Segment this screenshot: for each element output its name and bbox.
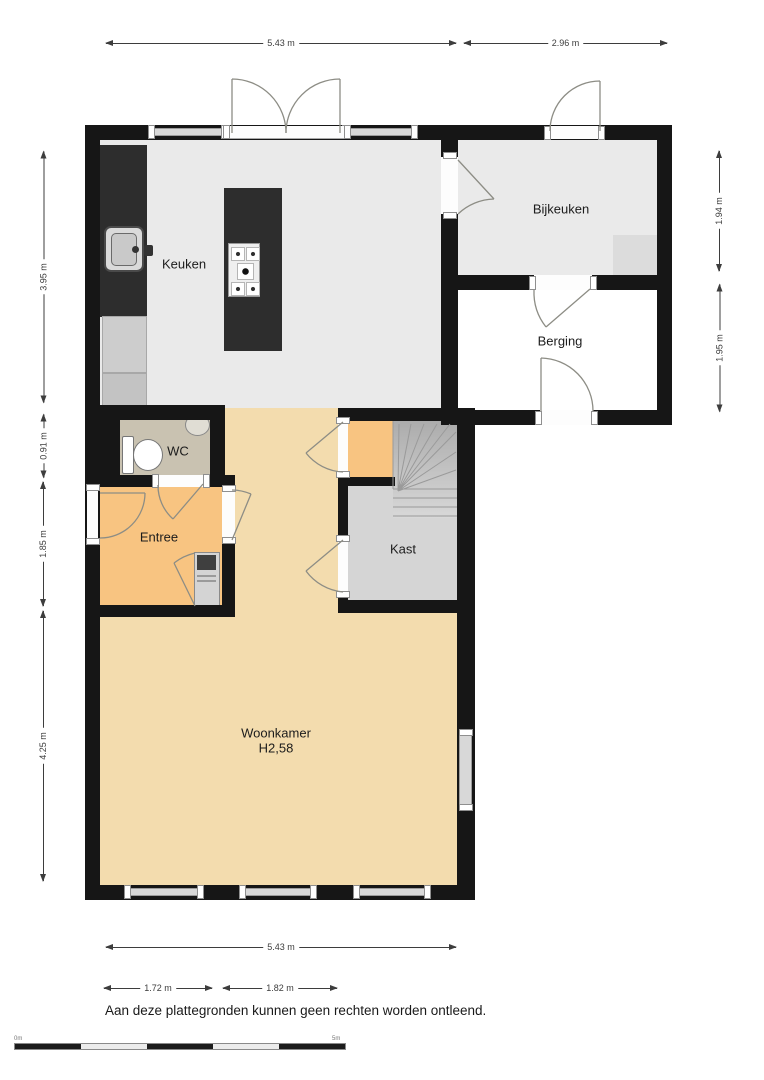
door-opening-bijkeuken-ext [549, 126, 600, 139]
door-opening-keuken-bijkeuken [441, 157, 458, 214]
window-woonkamer-east [459, 733, 472, 807]
dimension-top-main: 5.43 m [105, 36, 457, 50]
dimension-label: 4.25 m [38, 728, 48, 764]
dimension-label: 1.94 m [714, 193, 724, 229]
floorplan-canvas: Keuken Bijkeuken Berging WC Entree Kast … [0, 0, 764, 1080]
dimension-bottom-hall: 1.82 m [222, 981, 338, 995]
burner-icon [231, 282, 245, 296]
room-label-wc: WC [167, 443, 189, 458]
kitchen-sink [104, 226, 144, 272]
dimension-right-berging: 1.95 m [712, 283, 726, 412]
faucet-handle-icon [144, 245, 153, 256]
dimension-left-woonkamer: 4.25 m [36, 610, 50, 882]
dimension-label: 5.43 m [263, 942, 299, 952]
room-label-keuken: Keuken [162, 256, 206, 271]
stair-landing [348, 421, 393, 477]
stairs [393, 419, 457, 518]
wall-keuken-south [85, 405, 225, 420]
scale-segment [15, 1044, 81, 1049]
woonkamer-height: H2,58 [241, 741, 311, 756]
dimension-label: 1.85 m [38, 526, 48, 562]
door-opening-wc [157, 475, 205, 487]
scale-bar-end-label: 5m [332, 1036, 340, 1042]
scale-segment [147, 1044, 213, 1049]
wall-kast-south [338, 600, 465, 613]
dimension-label: 2.96 m [548, 38, 584, 48]
dimension-label: 1.95 m [714, 330, 724, 366]
burner-icon [231, 247, 245, 261]
door-opening-front-door [87, 489, 98, 540]
dimension-label: 1.82 m [262, 983, 298, 993]
scale-bar-start-label: 0m [14, 1036, 22, 1042]
electrical-panel-icon [197, 555, 216, 570]
scale-segment [81, 1044, 147, 1049]
door-opening-french-doors [228, 126, 346, 139]
disclaimer-text: Aan deze plattegronden kunnen geen recht… [105, 1003, 486, 1018]
door-swing-bijkeuken-ext [550, 81, 600, 131]
dimension-label: 0.91 m [38, 428, 48, 464]
burner-icon [246, 247, 260, 261]
toilet-bowl [133, 439, 163, 471]
panel-line [197, 580, 216, 582]
bijkeuken-appliance [613, 235, 657, 276]
window-keuken-left [152, 128, 224, 136]
dimension-right-bijkeuken: 1.94 m [712, 150, 726, 272]
dimension-label: 1.72 m [140, 983, 176, 993]
dimension-bottom-main: 5.43 m [105, 940, 457, 954]
scale-bar [15, 1044, 345, 1049]
room-label-berging: Berging [538, 333, 583, 348]
room-label-entree: Entree [140, 529, 178, 544]
window-woonkamer-1 [128, 888, 200, 896]
wall-stairs-north [338, 408, 457, 421]
door-opening-kast [338, 540, 348, 593]
dimension-left-entree: 1.85 m [36, 481, 50, 607]
room-label-woonkamer: Woonkamer H2,58 [241, 726, 311, 757]
window-woonkamer-3 [357, 888, 427, 896]
room-floor-berging [458, 290, 657, 410]
window-woonkamer-2 [243, 888, 313, 896]
door-opening-berging-ext [540, 410, 593, 425]
dimension-top-wing: 2.96 m [463, 36, 668, 50]
wall-right-main [457, 408, 475, 900]
dimension-label: 3.95 m [38, 259, 48, 295]
meter-cupboard [194, 552, 220, 606]
scale-segment [213, 1044, 279, 1049]
burner-icon [237, 263, 254, 280]
burner-icon [246, 282, 260, 296]
faucet-icon [132, 246, 139, 253]
panel-line [197, 575, 216, 577]
dimension-left-keuken: 3.95 m [36, 150, 50, 403]
door-opening-entree-hall [222, 490, 235, 539]
cooktop [228, 243, 260, 297]
door-opening-bijkeuken-berging [534, 275, 592, 290]
room-label-bijkeuken: Bijkeuken [533, 201, 589, 216]
dimension-left-wc: 0.91 m [36, 413, 50, 478]
wall-entree-south [85, 605, 235, 617]
appliance-block-upper [102, 316, 147, 373]
wall-landing-kast [342, 477, 395, 486]
scale-segment [279, 1044, 345, 1049]
window-keuken-right [346, 128, 414, 136]
woonkamer-name: Woonkamer [241, 726, 311, 741]
dimension-label: 5.43 m [263, 38, 299, 48]
door-opening-stairs [338, 422, 348, 473]
dimension-bottom-entree: 1.72 m [103, 981, 213, 995]
room-label-kast: Kast [390, 541, 416, 556]
